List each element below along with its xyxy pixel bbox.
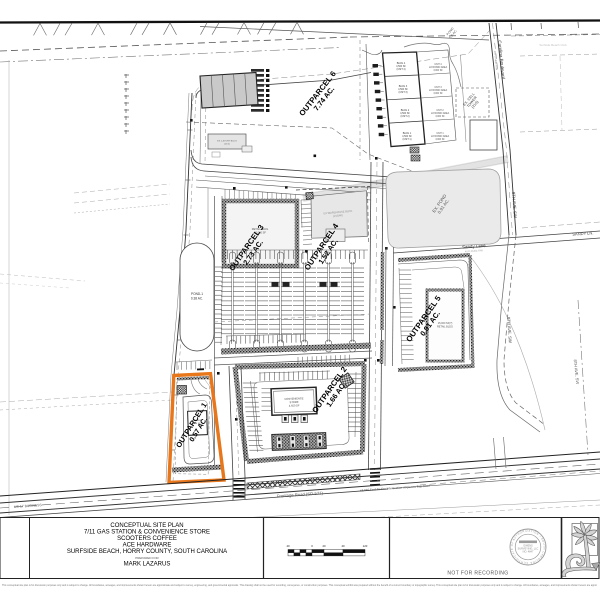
svg-text:Surfside Beach Club: Surfside Beach Club (539, 43, 567, 47)
svg-text:40: 40 (286, 544, 290, 548)
svg-text:UNIT 2: UNIT 2 (436, 110, 444, 112)
svg-text:EX 1-STORY BLDG: EX 1-STORY BLDG (217, 141, 237, 143)
svg-text:UNIT 3: UNIT 3 (434, 87, 442, 89)
svg-text:(21S): (21S) (224, 144, 230, 146)
svg-text:0.38 AC.: 0.38 AC. (191, 297, 203, 301)
svg-text:LAYDOWN AREA: LAYDOWN AREA (429, 66, 448, 69)
svg-text:3,000 SF: 3,000 SF (433, 70, 443, 72)
svg-text:(UNIT 1): (UNIT 1) (402, 138, 411, 141)
svg-text:NOT FOR RECORDING: NOT FOR RECORDING (447, 571, 508, 577)
svg-text:PREPARED FOR: PREPARED FOR (135, 556, 159, 560)
svg-text:4,650 SF: 4,650 SF (289, 403, 300, 407)
svg-text:(UNIT 3): (UNIT 3) (398, 91, 407, 94)
svg-text:120: 120 (363, 544, 368, 548)
svg-text:7/11 GAS STATION & CONVENIENC: 7/11 GAS STATION & CONVENIENCE STORE (84, 529, 210, 535)
svg-text:MARK LAZARUS: MARK LAZARUS (124, 561, 171, 567)
svg-text:CONCEPTUAL SITE PLAN: CONCEPTUAL SITE PLAN (110, 523, 183, 529)
svg-text:20: 20 (322, 544, 326, 548)
svg-text:UNIT 1: UNIT 1 (436, 133, 444, 135)
svg-text:POND-1: POND-1 (191, 292, 203, 296)
svg-text:RETAIL BLDG: RETAIL BLDG (437, 326, 453, 329)
svg-text:LAYDOWN AREA: LAYDOWN AREA (431, 135, 450, 138)
svg-text:NO. 4847: NO. 4847 (523, 551, 534, 554)
svg-text:LAYDOWN AREA: LAYDOWN AREA (429, 89, 448, 92)
svg-text:3,000 SF: 3,000 SF (435, 139, 445, 141)
svg-text:3,000 SF: 3,000 SF (435, 116, 445, 118)
svg-text:40: 40 (341, 544, 345, 548)
svg-text:(UNIT 4): (UNIT 4) (396, 68, 405, 71)
svg-text:SURFSIDE BEACH, HORRY COUNTY,: SURFSIDE BEACH, HORRY COUNTY, SOUTH CARO… (67, 549, 227, 555)
svg-text:SCOOTERS COFFEE: SCOOTERS COFFEE (117, 536, 177, 542)
svg-text:LAYDOWN AREA: LAYDOWN AREA (431, 112, 450, 115)
svg-text:UNIT 4: UNIT 4 (434, 64, 442, 66)
svg-text:This conceptual site plan is f: This conceptual site plan is for discuss… (2, 584, 598, 587)
svg-text:(UNIT 2): (UNIT 2) (400, 115, 409, 118)
svg-text:3,000 SF: 3,000 SF (433, 93, 443, 95)
svg-text:ACE HARDWARE: ACE HARDWARE (123, 543, 172, 549)
